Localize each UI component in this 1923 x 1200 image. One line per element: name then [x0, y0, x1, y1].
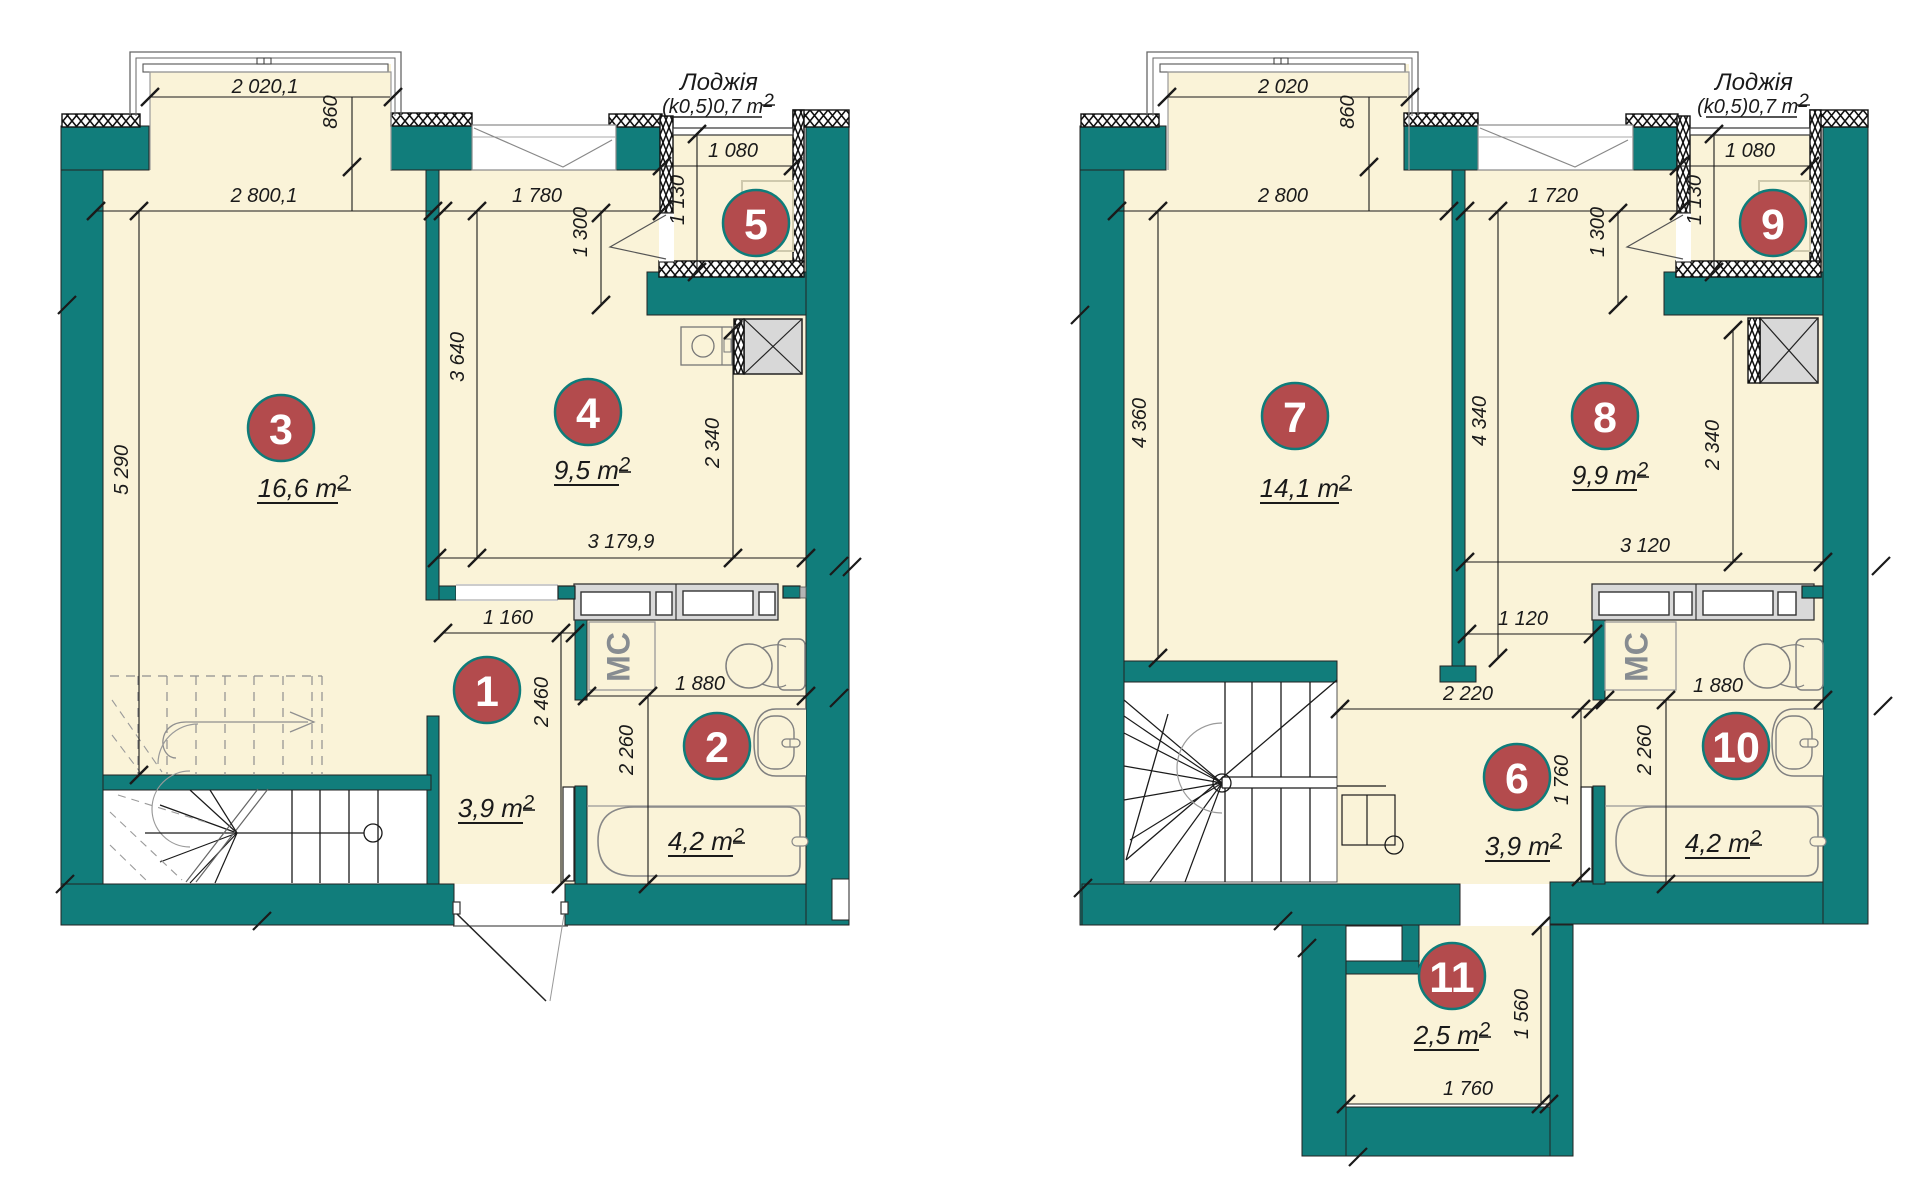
svg-text:1 080: 1 080: [708, 140, 758, 162]
svg-text:1 130: 1 130: [1684, 175, 1706, 225]
svg-text:860: 860: [1337, 95, 1359, 128]
svg-text:2 460: 2 460: [531, 677, 553, 728]
svg-text:10: 10: [1712, 724, 1760, 772]
svg-text:2 260: 2 260: [1634, 725, 1656, 776]
svg-text:4,2 m2: 4,2 m2: [1685, 827, 1761, 858]
svg-text:1 560: 1 560: [1511, 989, 1533, 1039]
svg-text:16,6 m2: 16,6 m2: [258, 472, 349, 503]
svg-text:4,2 m2: 4,2 m2: [668, 825, 744, 856]
svg-text:2 800,1: 2 800,1: [230, 185, 298, 207]
svg-text:1 160: 1 160: [483, 607, 533, 629]
svg-text:7: 7: [1283, 394, 1307, 442]
svg-text:1 880: 1 880: [1693, 675, 1743, 697]
svg-text:1 880: 1 880: [675, 673, 725, 695]
svg-text:5 290: 5 290: [111, 445, 133, 495]
svg-text:3 120: 3 120: [1620, 535, 1670, 557]
svg-text:МС: МС: [600, 632, 636, 682]
svg-text:Лоджія: Лоджія: [1713, 69, 1793, 96]
svg-text:1 300: 1 300: [570, 207, 592, 257]
svg-text:9: 9: [1761, 201, 1785, 249]
svg-text:5: 5: [744, 201, 768, 249]
svg-text:МС: МС: [1618, 632, 1654, 682]
svg-text:1 720: 1 720: [1528, 185, 1578, 207]
svg-text:2 220: 2 220: [1442, 683, 1493, 705]
svg-text:2,5 m2: 2,5 m2: [1413, 1019, 1490, 1050]
svg-text:1 130: 1 130: [667, 175, 689, 225]
svg-text:2: 2: [705, 724, 729, 772]
svg-text:3,9 m2: 3,9 m2: [458, 792, 534, 823]
svg-text:(k0,5)0,7 m2: (k0,5)0,7 m2: [662, 91, 774, 118]
svg-text:8: 8: [1593, 394, 1617, 442]
svg-text:3: 3: [269, 406, 293, 454]
svg-text:4 340: 4 340: [1469, 396, 1491, 446]
svg-text:2 340: 2 340: [702, 418, 724, 469]
svg-text:(k0,5)0,7 m2: (k0,5)0,7 m2: [1697, 91, 1809, 118]
svg-text:9,9 m2: 9,9 m2: [1572, 459, 1648, 490]
svg-text:1 760: 1 760: [1443, 1078, 1493, 1100]
svg-text:3 179,9: 3 179,9: [588, 531, 655, 553]
svg-text:2 800: 2 800: [1257, 185, 1308, 207]
svg-text:1 760: 1 760: [1551, 755, 1573, 805]
svg-text:2 340: 2 340: [1702, 420, 1724, 471]
svg-text:2 020,1: 2 020,1: [231, 76, 299, 98]
svg-text:1 300: 1 300: [1587, 207, 1609, 257]
svg-text:860: 860: [320, 95, 342, 128]
svg-text:4: 4: [576, 390, 600, 438]
svg-text:2 020: 2 020: [1257, 76, 1308, 98]
svg-text:3 640: 3 640: [447, 332, 469, 382]
svg-text:1 780: 1 780: [512, 185, 562, 207]
svg-text:14,1 m2: 14,1 m2: [1260, 472, 1351, 503]
svg-text:9,5 m2: 9,5 m2: [554, 454, 630, 485]
svg-text:1 080: 1 080: [1725, 140, 1775, 162]
svg-text:Лоджія: Лоджія: [678, 69, 758, 96]
svg-text:11: 11: [1429, 954, 1474, 1002]
svg-text:4 360: 4 360: [1129, 398, 1151, 448]
svg-text:6: 6: [1505, 755, 1529, 803]
svg-text:1: 1: [475, 668, 499, 716]
svg-text:1 120: 1 120: [1498, 608, 1548, 630]
svg-text:2 260: 2 260: [616, 725, 638, 776]
svg-text:3,9 m2: 3,9 m2: [1485, 830, 1561, 861]
